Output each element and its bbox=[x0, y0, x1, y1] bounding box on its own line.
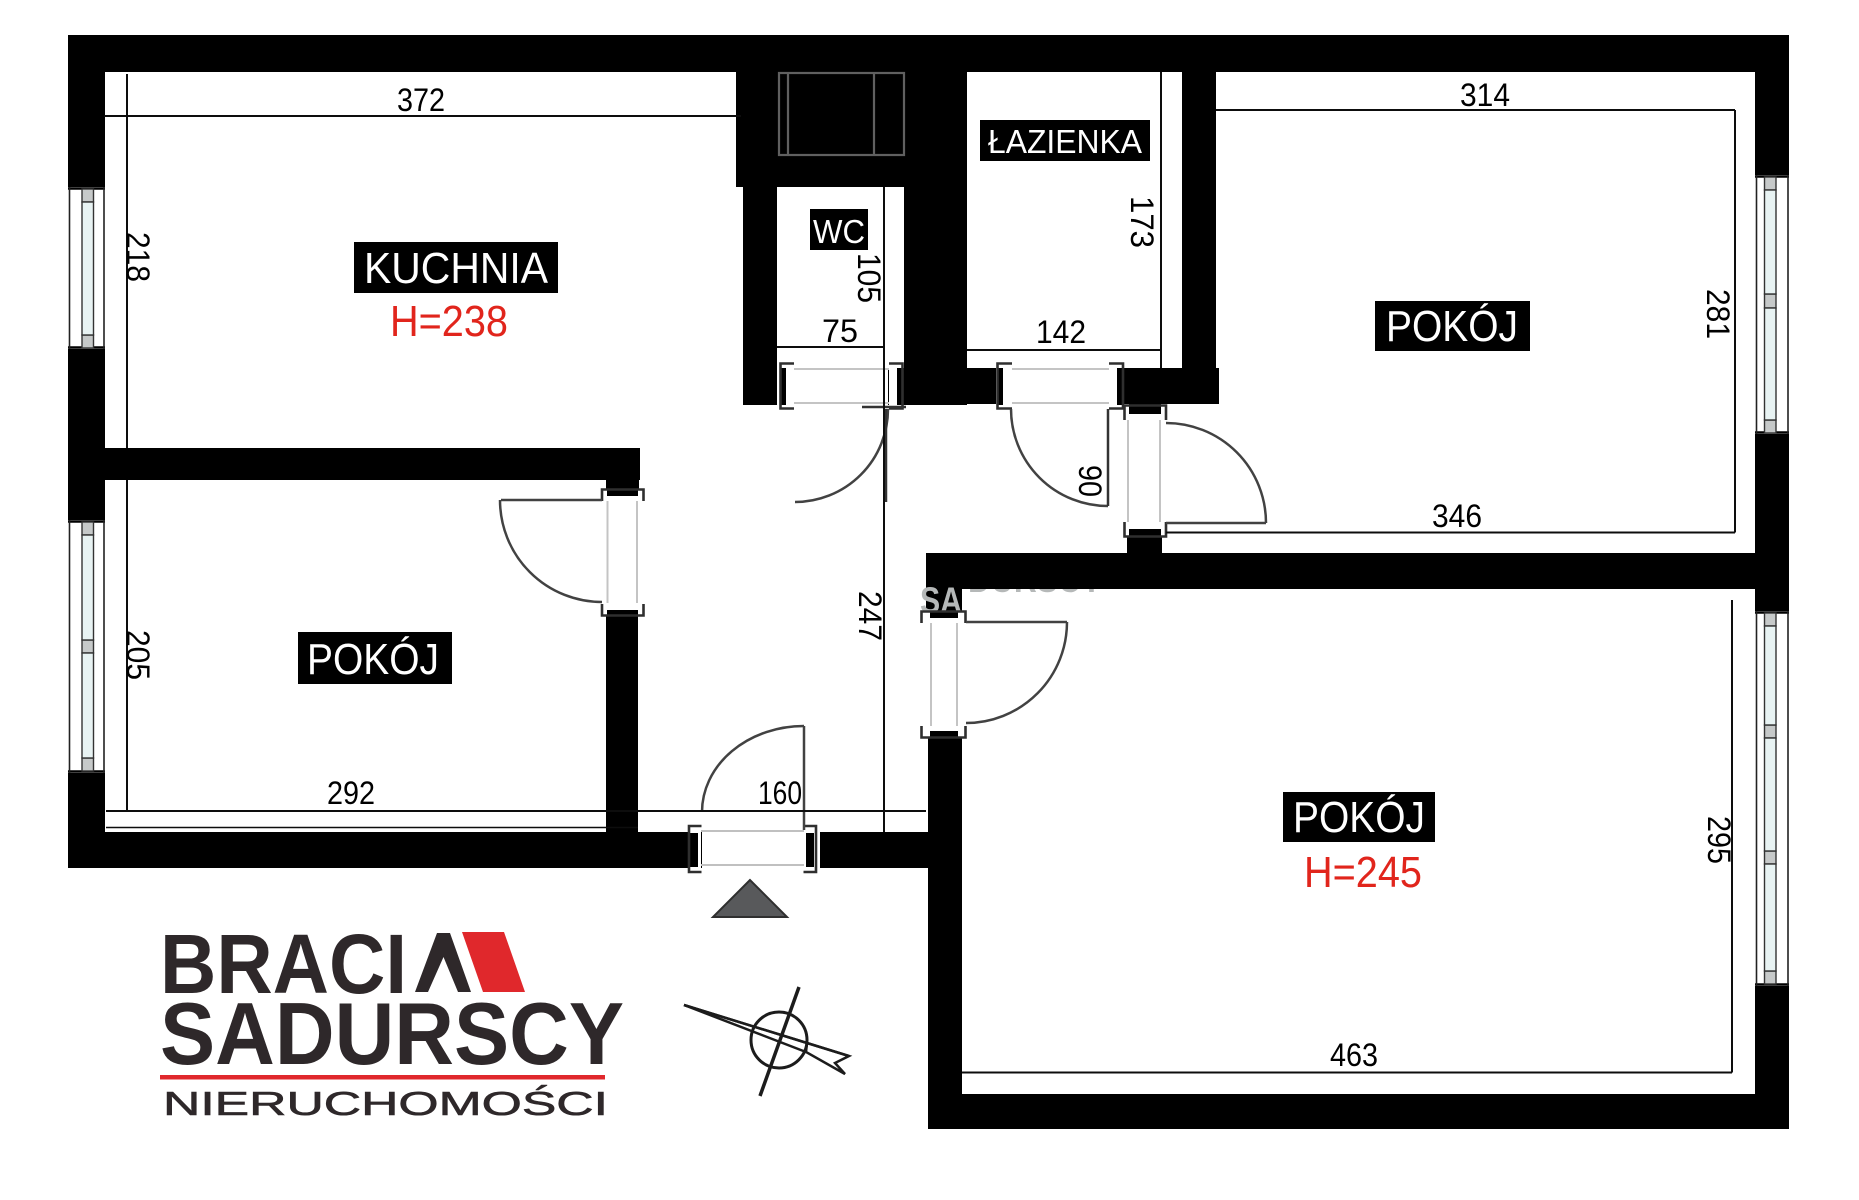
svg-text:346: 346 bbox=[1432, 498, 1482, 534]
svg-text:H=245: H=245 bbox=[1304, 848, 1422, 897]
svg-text:160: 160 bbox=[758, 775, 802, 811]
svg-text:ŁAZIENKA: ŁAZIENKA bbox=[988, 123, 1142, 160]
svg-text:218: 218 bbox=[120, 232, 156, 282]
svg-text:75: 75 bbox=[822, 313, 858, 349]
svg-text:292: 292 bbox=[327, 775, 375, 811]
svg-text:463: 463 bbox=[1330, 1037, 1378, 1073]
svg-text:SADURSCY: SADURSCY bbox=[160, 984, 624, 1083]
svg-text:WC: WC bbox=[813, 213, 865, 250]
svg-text:KUCHNIA: KUCHNIA bbox=[364, 244, 549, 293]
svg-text:142: 142 bbox=[1036, 314, 1086, 350]
svg-text:POKÓJ: POKÓJ bbox=[307, 635, 439, 684]
svg-text:NIERUCHOMOŚCI: NIERUCHOMOŚCI bbox=[163, 1084, 608, 1122]
svg-text:281: 281 bbox=[1700, 289, 1736, 339]
svg-text:314: 314 bbox=[1460, 77, 1510, 113]
svg-text:90: 90 bbox=[1072, 465, 1108, 497]
svg-text:POKÓJ: POKÓJ bbox=[1293, 793, 1425, 842]
svg-text:247: 247 bbox=[852, 591, 888, 641]
svg-text:372: 372 bbox=[397, 82, 445, 118]
svg-text:173: 173 bbox=[1124, 196, 1160, 248]
svg-text:105: 105 bbox=[851, 253, 887, 303]
svg-text:205: 205 bbox=[120, 630, 156, 680]
svg-text:H=238: H=238 bbox=[390, 297, 508, 346]
svg-text:295: 295 bbox=[1701, 816, 1737, 864]
svg-text:POKÓJ: POKÓJ bbox=[1386, 302, 1518, 351]
